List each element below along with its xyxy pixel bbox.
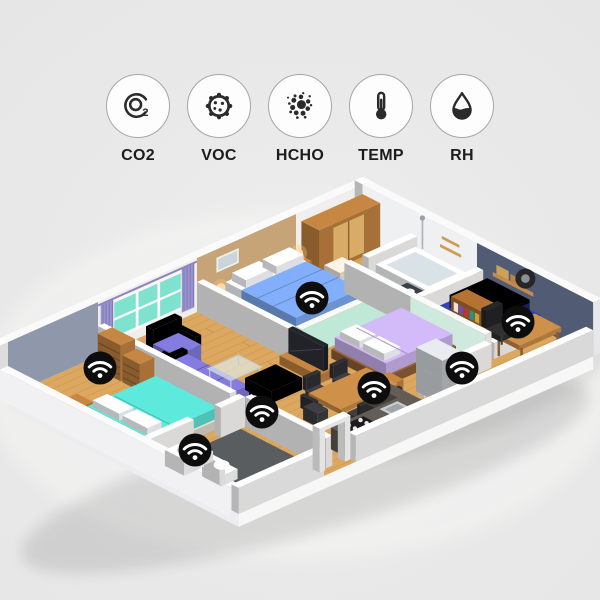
sensor-co2: 2 CO2 xyxy=(106,74,170,165)
sensor-rh: RH xyxy=(430,74,494,165)
svg-text:2: 2 xyxy=(142,107,148,119)
sensor-label: CO2 xyxy=(106,147,170,165)
sensor-hcho: HCHO xyxy=(268,74,332,165)
sensor-temp: TEMP xyxy=(349,74,413,165)
wifi-icon xyxy=(296,282,329,315)
wifi-icon xyxy=(358,372,391,405)
sensor-label: VOC xyxy=(187,147,251,165)
wifi-icon xyxy=(446,352,479,385)
sensor-label: RH xyxy=(430,147,494,165)
product-showcase: 2 CO2 VOC xyxy=(0,0,600,600)
humidity-droplet-icon xyxy=(430,74,494,138)
sensor-label: HCHO xyxy=(268,147,332,165)
wifi-icon xyxy=(502,306,535,339)
sensor-label: TEMP xyxy=(349,147,413,165)
co2-molecule-icon: 2 xyxy=(106,74,170,138)
sensor-icon-row: 2 CO2 VOC xyxy=(106,74,494,165)
sensor-voc: VOC xyxy=(187,74,251,165)
thermometer-icon xyxy=(349,74,413,138)
voc-particle-icon xyxy=(187,74,251,138)
hcho-particles-icon xyxy=(268,74,332,138)
wifi-icon xyxy=(179,434,212,467)
wifi-icon xyxy=(246,396,279,429)
wifi-icon xyxy=(84,352,117,385)
